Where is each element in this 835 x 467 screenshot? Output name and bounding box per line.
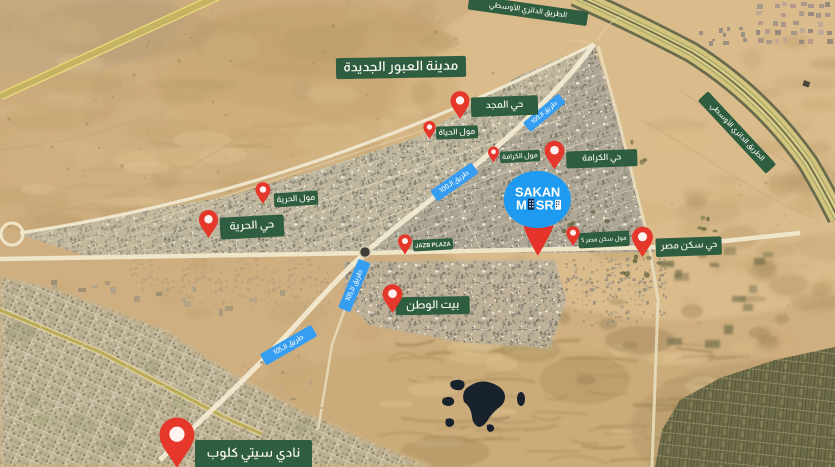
- svg-text:SR: SR: [536, 198, 555, 213]
- svg-text:M: M: [516, 198, 527, 213]
